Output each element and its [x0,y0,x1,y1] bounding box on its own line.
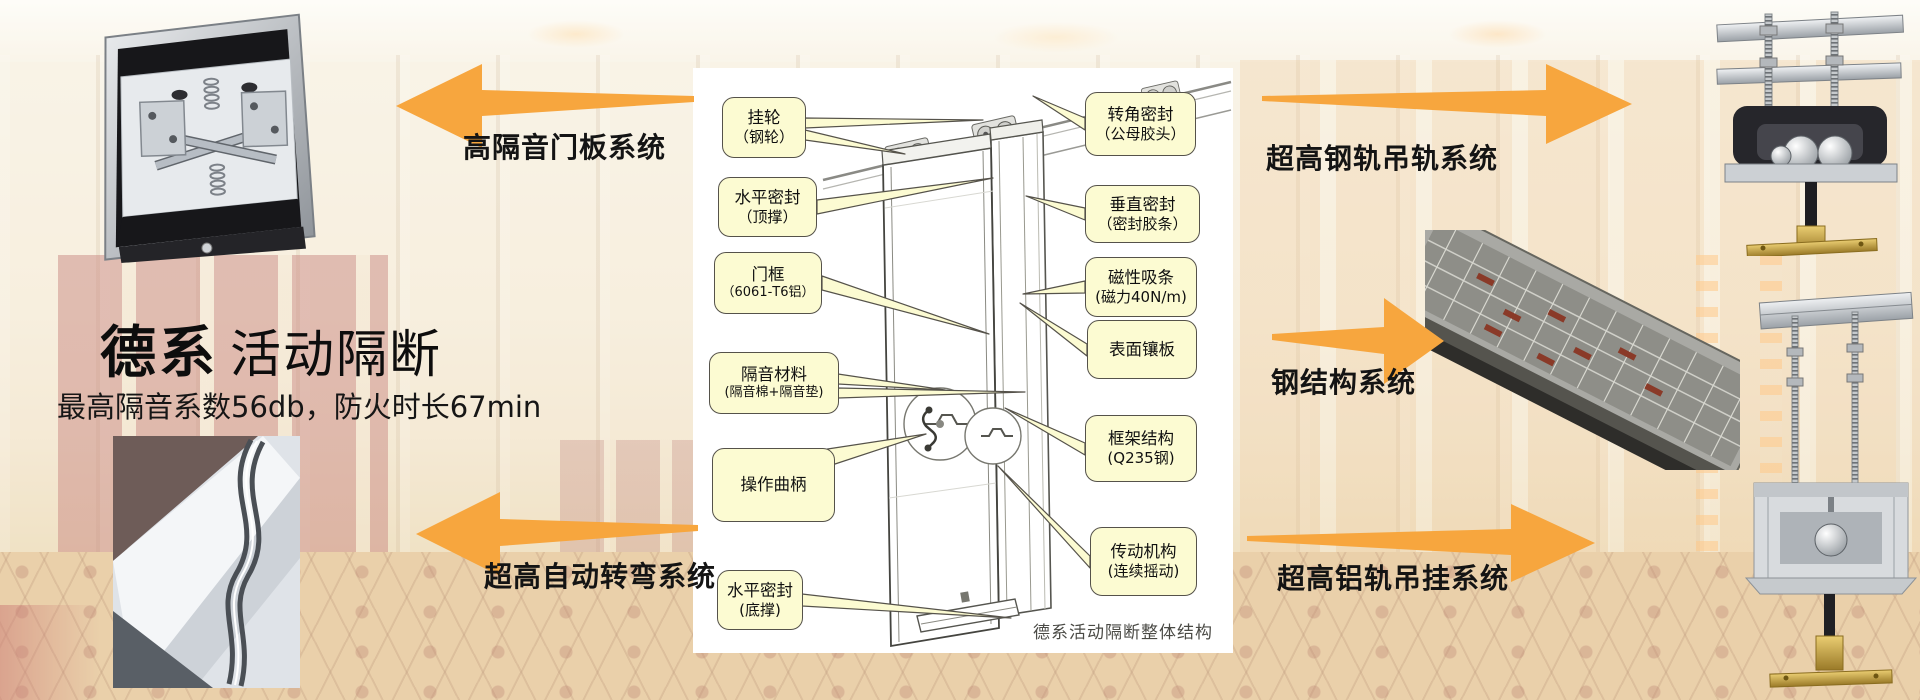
alu-hanger-illustration [1742,288,1920,693]
callout-text-line: （钢轮） [734,128,794,147]
callout-text-line: （顶撑） [737,208,797,227]
callout-transmission-mechanism: 传动机构 (连续摇动) [1090,527,1197,596]
callout-text-line: (磁力40N/m) [1095,288,1187,307]
curved-track-illustration [113,436,300,688]
callout-text-line: (Q235钢) [1107,449,1174,468]
callout-operating-crank: 操作曲柄 [712,448,835,522]
callout-text-line: 传动机构 [1111,541,1177,562]
callout-text-line: (底撑) [739,601,781,620]
page-title: 德系活动隔断 [100,308,442,389]
aluminium-rail-hanger-photo [1742,288,1920,693]
partition-system-poster: 德系活动隔断 最高隔音系数56db，防火时长67min [0,0,1920,700]
steel-frame-illustration [1425,230,1740,470]
steel-structure-frame-photo [1425,230,1740,470]
callout-horizontal-seal-top: 水平密封 （顶撑） [718,177,817,237]
callout-text-line: 磁性吸条 [1108,267,1174,288]
callout-frame-structure: 框架结构 (Q235钢) [1085,415,1197,482]
label-door-panel-system: 高隔音门板系统 [463,126,666,166]
callout-door-frame: 门框 （6061-T6铝） [714,252,822,314]
door-mechanism-illustration [91,8,322,264]
steel-hanger-illustration [1705,6,1917,256]
callout-text-line: （密封胶条） [1097,215,1187,234]
callout-text-line: （6061-T6铝） [722,285,815,302]
callout-sound-insulation: 隔音材料 (隔音棉+隔音垫) [709,352,839,414]
callout-text-line: 表面镶板 [1109,339,1175,360]
label-auto-turn-system: 超高自动转弯系统 [484,555,716,595]
product-name: 活动隔断 [230,326,442,385]
callout-text-line: 水平密封 [727,580,793,601]
brand-name: 德系 [100,321,218,386]
callout-text-line: 水平密封 [735,187,801,208]
callout-corner-seal: 转角密封 （公母胶头） [1085,92,1196,156]
label-steel-structure-system: 钢结构系统 [1271,361,1416,401]
callout-text-line: 挂轮 [748,107,781,128]
callout-text-line: 门框 [752,264,785,285]
callout-text-line: 操作曲柄 [741,474,807,495]
callout-text-line: (连续摇动) [1108,562,1180,581]
label-steel-rail-system: 超高钢轨吊轨系统 [1266,137,1498,177]
callout-text-line: （公母胶头） [1095,125,1185,144]
callout-text-line: (隔音棉+隔音垫) [724,385,823,402]
label-alu-rail-system: 超高铝轨吊挂系统 [1277,557,1509,597]
page-subtitle: 最高隔音系数56db，防火时长67min [57,384,541,426]
callout-text-line: 隔音材料 [741,364,807,385]
callout-vertical-seal: 垂直密封 （密封胶条） [1085,185,1200,243]
callout-magnetic-strip: 磁性吸条 (磁力40N/m) [1085,257,1197,317]
door-panel-top-mechanism-photo [91,8,322,264]
callout-surface-panel: 表面镶板 [1087,320,1197,379]
callout-horizontal-seal-bottom: 水平密封 (底撑) [717,570,803,630]
steel-rail-hanger-photo [1705,6,1917,256]
arrow-right-steel-rail [1258,60,1638,148]
callout-text-line: 转角密封 [1108,104,1174,125]
callout-hanging-wheel: 挂轮 （钢轮） [722,97,806,158]
curved-track-system-photo [113,436,300,688]
callout-text-line: 框架结构 [1108,428,1174,449]
diagram-caption: 德系活动隔断整体结构 [1028,618,1218,643]
callout-text-line: 垂直密封 [1110,194,1176,215]
